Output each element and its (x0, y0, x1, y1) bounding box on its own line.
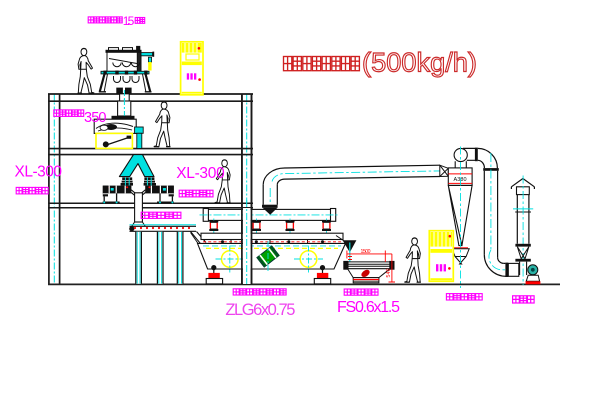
svg-text:A380: A380 (454, 177, 467, 183)
svg-text:ZLG6x0.75: ZLG6x0.75 (225, 301, 295, 319)
svg-text:1.5: 1.5 (123, 14, 135, 28)
svg-text:1500: 1500 (361, 249, 371, 255)
svg-text:XL-300: XL-300 (176, 165, 225, 182)
svg-text:(500kg/h): (500kg/h) (362, 48, 477, 78)
svg-text:350: 350 (84, 110, 107, 126)
svg-text:XL-300: XL-300 (15, 163, 63, 180)
svg-text:540: 540 (386, 268, 392, 277)
svg-text:FS0.6x1.5: FS0.6x1.5 (337, 299, 400, 316)
